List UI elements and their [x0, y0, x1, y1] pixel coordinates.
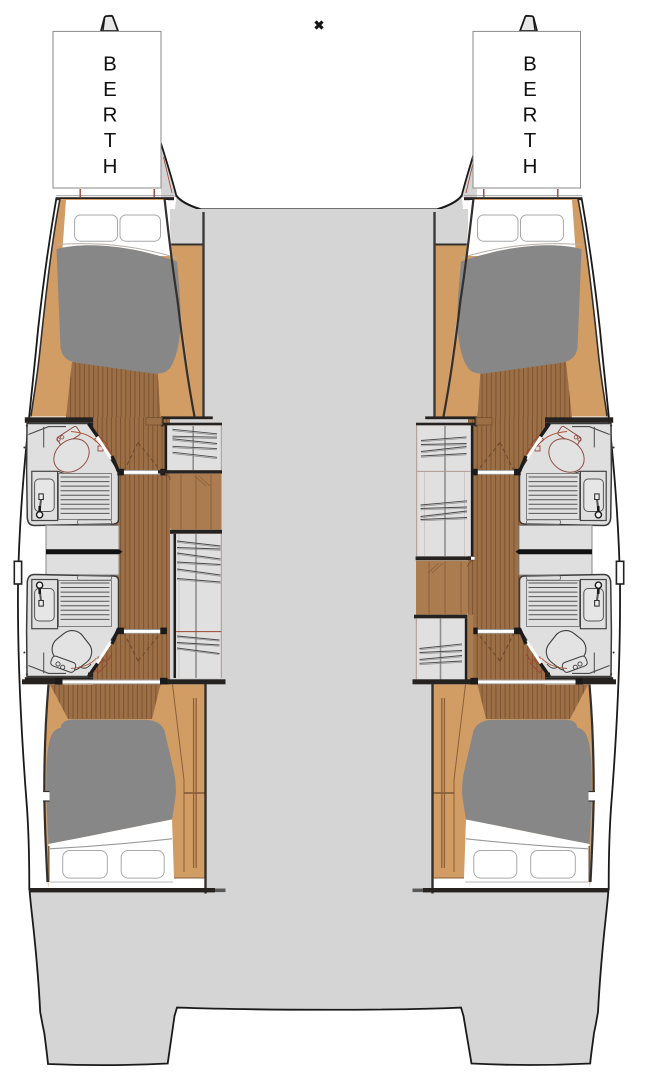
svg-text:R: R: [523, 104, 538, 127]
svg-text:H: H: [523, 155, 538, 178]
svg-text:T: T: [104, 129, 117, 152]
svg-text:B: B: [103, 52, 117, 75]
svg-text:T: T: [524, 129, 537, 152]
svg-text:H: H: [103, 155, 118, 178]
svg-text:E: E: [523, 78, 537, 101]
svg-text:R: R: [103, 104, 118, 127]
svg-text:E: E: [103, 78, 117, 101]
svg-text:B: B: [523, 52, 537, 75]
